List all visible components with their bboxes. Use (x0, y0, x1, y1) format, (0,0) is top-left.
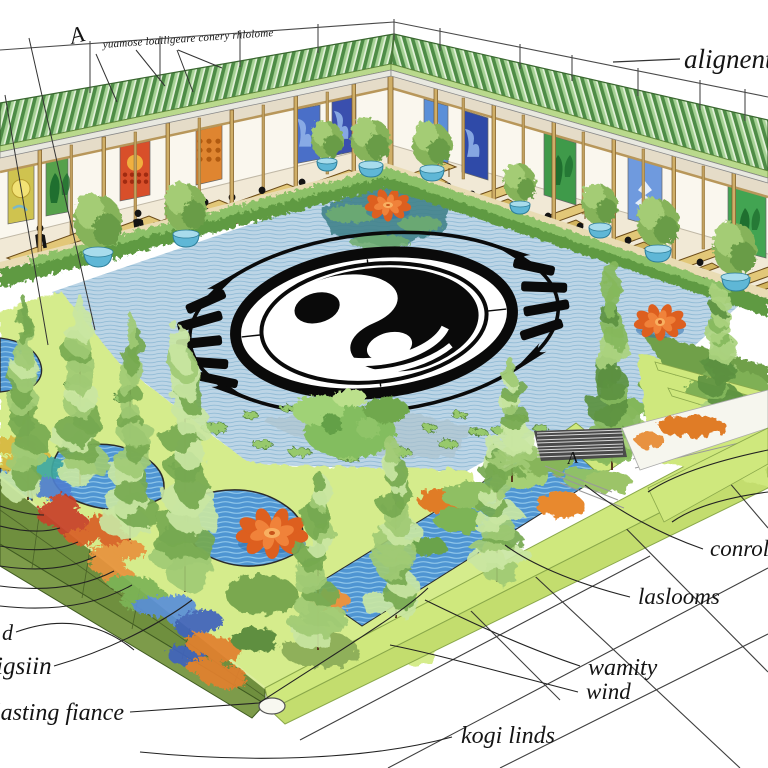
svg-text:alignentr: alignentr (684, 44, 768, 74)
svg-text:lasting fiance: lasting fiance (0, 700, 124, 726)
svg-text:igsiin: igsiin (0, 653, 52, 680)
svg-text:kogi linds: kogi linds (461, 723, 555, 749)
svg-text:wamity: wamity (588, 655, 658, 681)
svg-text:laslooms: laslooms (638, 584, 720, 609)
svg-text:d: d (2, 620, 14, 645)
svg-text:conrols: conrols (710, 536, 768, 561)
svg-text:wind: wind (586, 679, 631, 704)
